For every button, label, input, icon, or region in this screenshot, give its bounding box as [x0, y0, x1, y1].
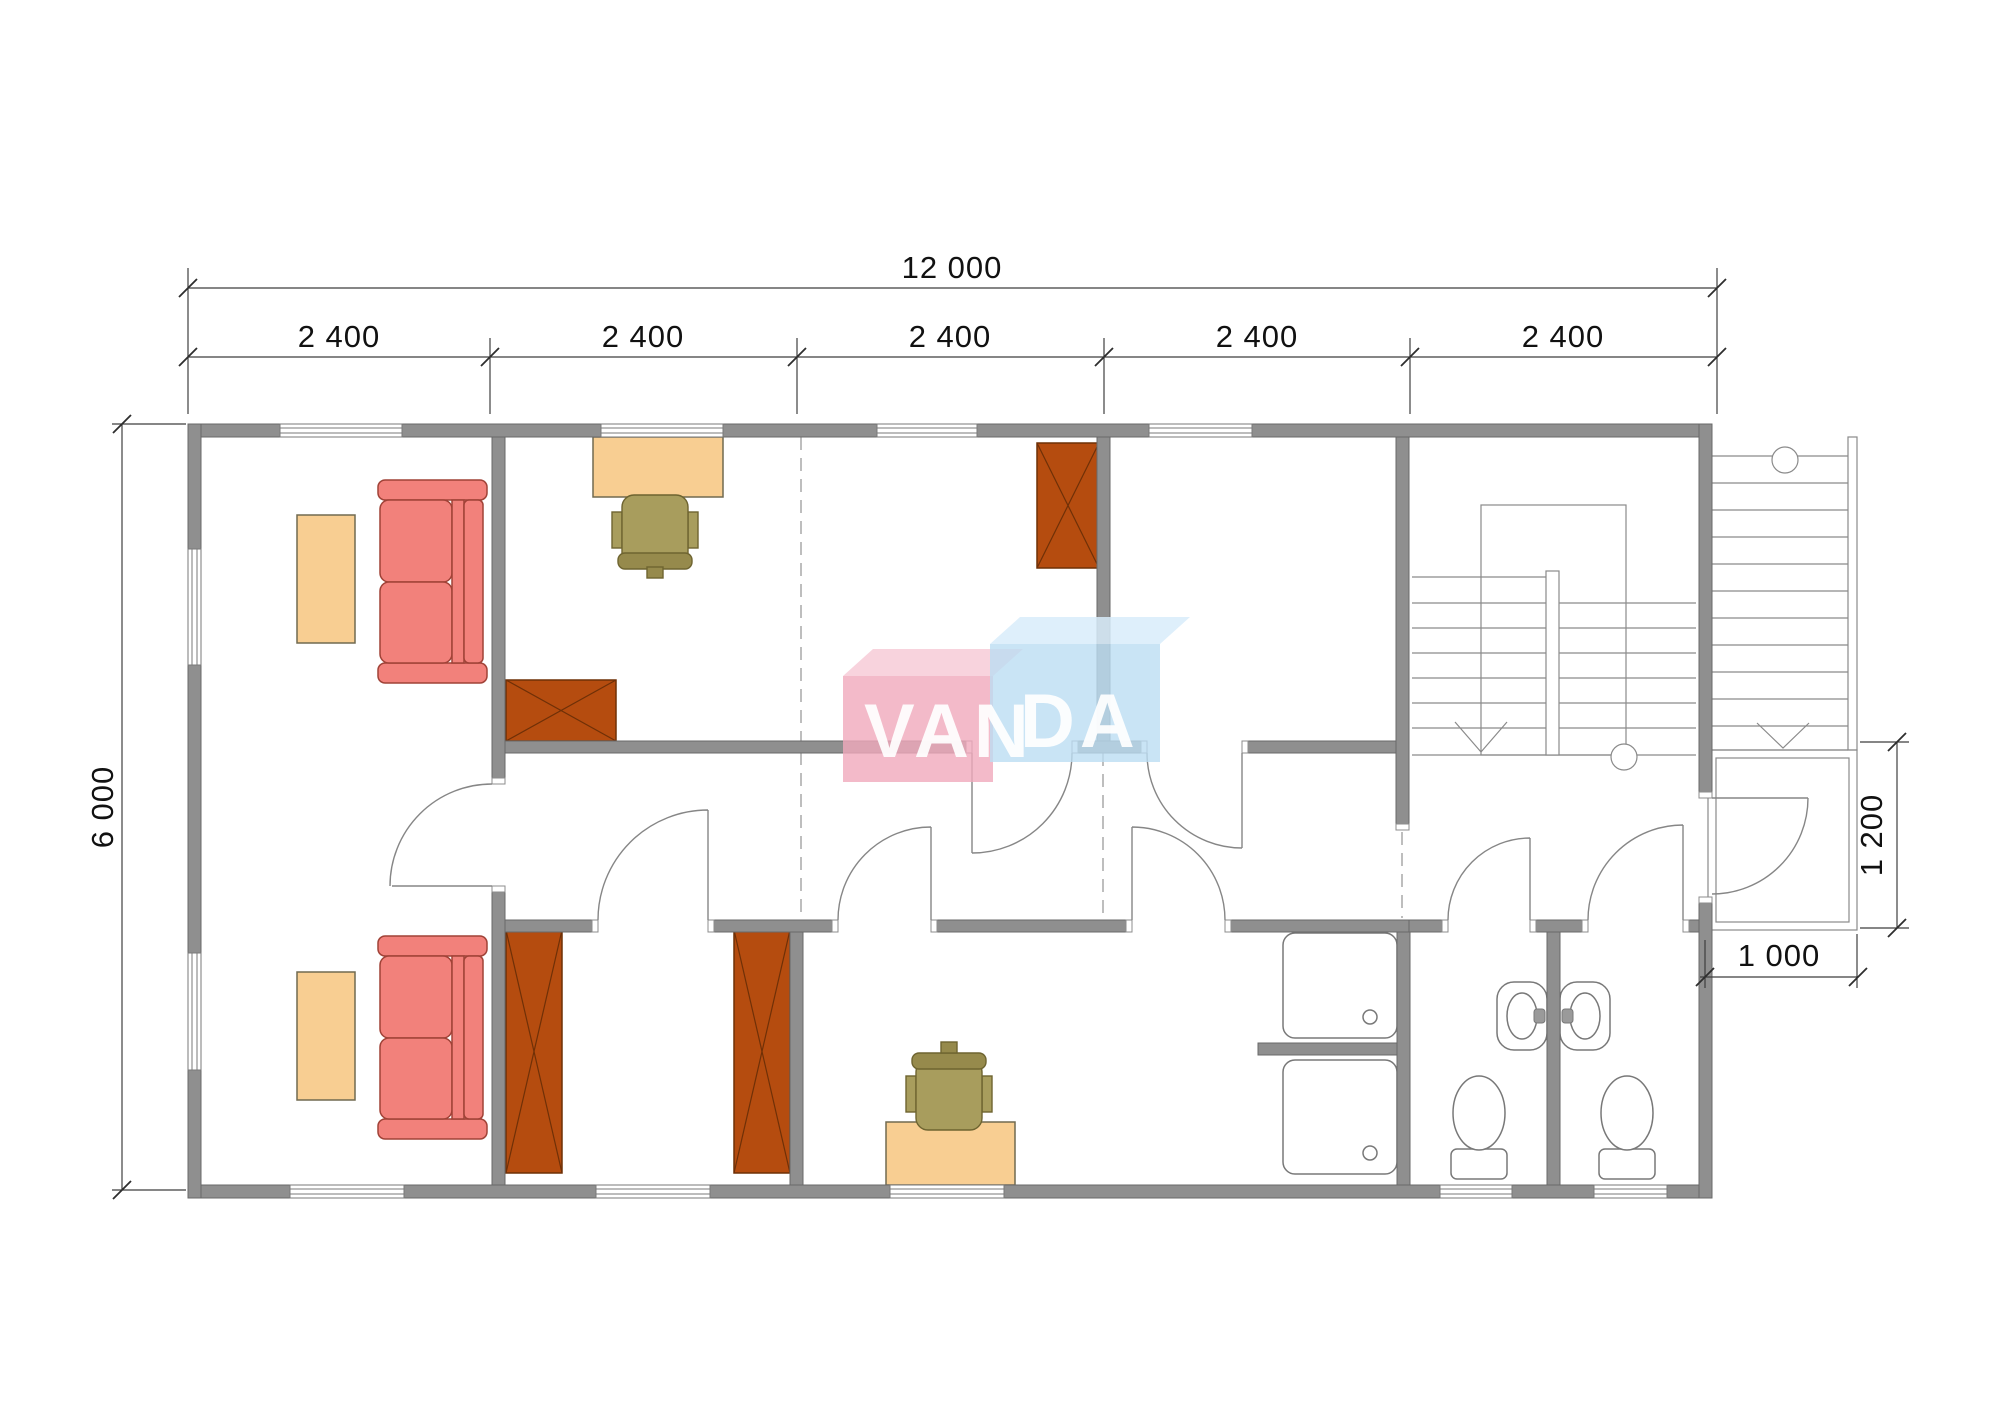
window-left-2 — [188, 953, 201, 1070]
dim-label-6000: 6 000 — [85, 766, 120, 849]
wall-stairwell — [1396, 437, 1409, 830]
logo-blue-top-face — [990, 617, 1190, 644]
sofa-armrest — [378, 936, 487, 956]
window-top-3 — [877, 424, 977, 437]
upper-sofa — [378, 480, 487, 683]
wall-closet-side — [790, 932, 803, 1185]
wall-corridor-top-3 — [1242, 741, 1396, 753]
toilet-bowl — [1601, 1076, 1653, 1150]
external-stair-rail — [1848, 437, 1857, 750]
wall-corridor-bottom-6 — [1530, 920, 1588, 932]
desk-table — [886, 1122, 1015, 1185]
jamb — [1126, 920, 1132, 932]
sofa-back — [452, 500, 464, 663]
jamb — [708, 920, 714, 932]
wall-exterior-left — [188, 424, 201, 1198]
wardrobe-room3 — [1037, 443, 1099, 568]
toilet-bowl — [1453, 1076, 1505, 1150]
window-top-1 — [280, 424, 402, 437]
window-bottom-2 — [596, 1185, 710, 1198]
window-bottom-wc1 — [1440, 1185, 1512, 1198]
wall-corridor-bottom-3 — [931, 920, 1132, 932]
jamb — [1225, 920, 1231, 932]
jamb — [492, 778, 505, 784]
chair-armrest — [612, 512, 622, 548]
dim-label-1200: 1 200 — [1854, 794, 1889, 877]
coffee-table-lower — [297, 972, 355, 1100]
washbasin-bowl — [1507, 993, 1537, 1039]
shower-drain — [1363, 1010, 1377, 1024]
wall-corridor-bottom-1 — [505, 920, 598, 932]
chair-back — [912, 1053, 986, 1069]
coffee-table-upper — [297, 515, 355, 643]
wall-corridor-bottom-4 — [1225, 920, 1409, 932]
shower-drain — [1363, 1146, 1377, 1160]
canopy-column-mark — [1772, 447, 1798, 473]
dim-label-bay2: 2 400 — [602, 319, 685, 354]
wardrobe-closet-left — [506, 930, 562, 1173]
sofa-back — [452, 956, 464, 1119]
sofa-cushion — [380, 956, 452, 1038]
floor-plan-drawing: VAN DA 12 000 2 400 2 400 2 400 2 400 2 … — [0, 0, 2000, 1423]
shower-tray — [1283, 933, 1397, 1038]
dim-label-bay3: 2 400 — [909, 319, 992, 354]
window-top-2 — [601, 424, 723, 437]
sofa-cushion — [380, 582, 452, 663]
chair-tab — [941, 1042, 957, 1053]
wall-corridor-bottom-2 — [708, 920, 838, 932]
sofa-cushion — [380, 500, 452, 582]
window-bottom-1 — [290, 1185, 404, 1198]
jamb — [931, 920, 937, 932]
floor-plan-page: VAN DA 12 000 2 400 2 400 2 400 2 400 2 … — [0, 0, 2000, 1423]
dim-label-bay1: 2 400 — [298, 319, 381, 354]
wardrobe-closet-right — [734, 930, 790, 1173]
sofa-back — [464, 500, 483, 663]
faucet-icon — [1534, 1009, 1545, 1023]
dim-label-12000: 12 000 — [902, 250, 1003, 285]
dim-label-1000: 1 000 — [1738, 938, 1821, 973]
logo-text-da: DA — [1020, 679, 1140, 764]
window-top-4 — [1149, 424, 1252, 437]
toilet-tank — [1451, 1149, 1507, 1179]
jamb — [1442, 920, 1448, 932]
desk-table — [593, 437, 723, 497]
window-left-1 — [188, 549, 201, 665]
chair-tab — [647, 567, 663, 578]
jamb — [1683, 920, 1689, 932]
dim-label-bay4: 2 400 — [1216, 319, 1299, 354]
wall-livingroom-upper — [492, 437, 505, 784]
jamb — [832, 920, 838, 932]
wall-wc-divider — [1547, 932, 1560, 1185]
wall-livingroom-lower — [492, 886, 505, 1185]
dim-label-bay5: 2 400 — [1522, 319, 1605, 354]
sofa-armrest — [378, 1119, 487, 1139]
lower-sofa — [378, 936, 487, 1139]
jamb — [1530, 920, 1536, 932]
chair-armrest — [982, 1076, 992, 1112]
jamb — [592, 920, 598, 932]
window-bottom-3 — [890, 1185, 1004, 1198]
chair-seat — [916, 1060, 982, 1130]
sofa-armrest — [378, 480, 487, 500]
washbasin-bowl — [1570, 993, 1600, 1039]
sofa-armrest — [378, 663, 487, 683]
jamb — [492, 886, 505, 892]
wardrobe-room2 — [506, 680, 616, 741]
faucet-icon — [1562, 1009, 1573, 1023]
stair-railing — [1546, 571, 1559, 755]
sofa-cushion — [380, 1038, 452, 1119]
wall-shower-stub — [1258, 1043, 1397, 1055]
chair-armrest — [906, 1076, 916, 1112]
toilet-tank — [1599, 1149, 1655, 1179]
jamb — [1699, 897, 1712, 903]
wall-exterior-right-upper — [1699, 424, 1712, 798]
jamb — [1582, 920, 1588, 932]
jamb — [1699, 792, 1712, 798]
logo-text-van: VAN — [864, 689, 1034, 774]
sofa-back — [464, 956, 483, 1119]
wall-bathroom-side — [1397, 932, 1410, 1185]
jamb — [1396, 824, 1409, 830]
window-bottom-wc2 — [1594, 1185, 1667, 1198]
stair-column-mark — [1611, 744, 1637, 770]
chair-armrest — [688, 512, 698, 548]
shower-tray — [1283, 1060, 1397, 1174]
jamb — [1242, 741, 1248, 753]
